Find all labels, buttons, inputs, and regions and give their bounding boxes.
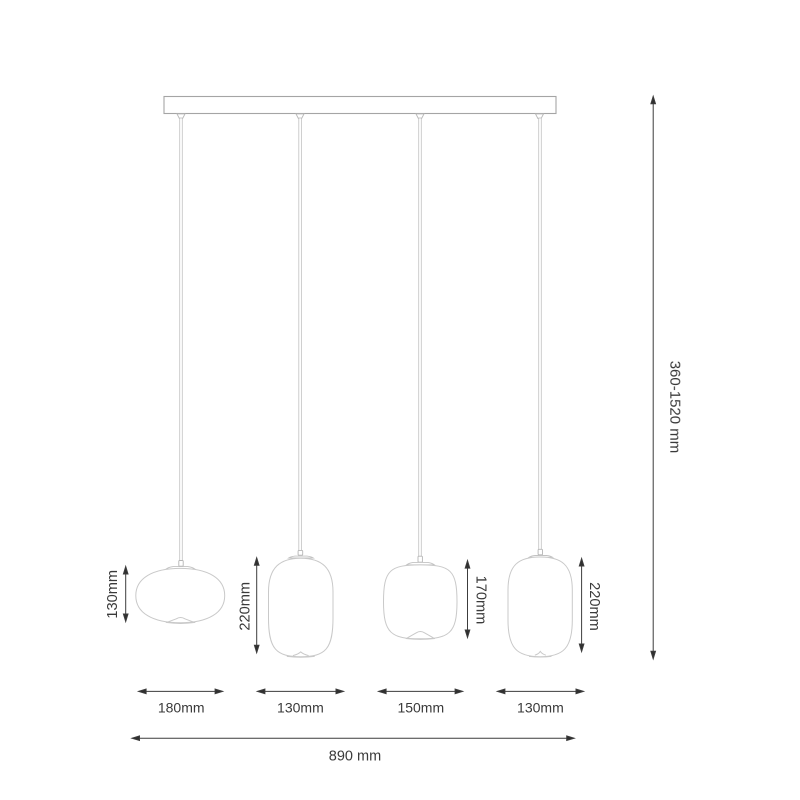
svg-text:130mm: 130mm [277,700,324,716]
svg-text:130mm: 130mm [105,570,121,619]
svg-text:220mm: 220mm [586,582,602,631]
svg-text:130mm: 130mm [517,700,564,716]
svg-text:890 mm: 890 mm [329,749,381,765]
svg-text:180mm: 180mm [158,700,205,716]
svg-text:360-1520 mm: 360-1520 mm [666,361,683,454]
svg-text:170mm: 170mm [472,576,488,625]
svg-text:220mm: 220mm [237,582,253,631]
svg-text:150mm: 150mm [397,700,444,716]
